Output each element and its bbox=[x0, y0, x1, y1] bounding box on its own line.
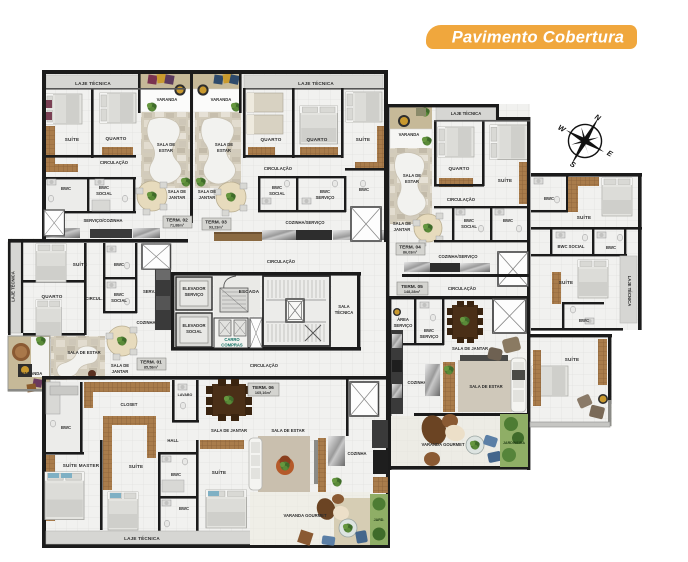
svg-text:TÉCNICA: TÉCNICA bbox=[335, 310, 354, 315]
svg-text:HALL: HALL bbox=[167, 438, 179, 443]
svg-text:SUÍTE: SUÍTE bbox=[212, 468, 227, 475]
svg-text:SERVIÇO: SERVIÇO bbox=[394, 323, 414, 328]
svg-text:BWC: BWC bbox=[61, 425, 71, 430]
svg-text:QUARTO: QUARTO bbox=[306, 137, 327, 142]
svg-text:86,03m²: 86,03m² bbox=[403, 251, 418, 255]
svg-text:COMPRAS: COMPRAS bbox=[221, 343, 243, 348]
svg-text:LAJE TÉCNICA: LAJE TÉCNICA bbox=[627, 276, 632, 306]
svg-text:CIRCULAÇÃO: CIRCULAÇÃO bbox=[447, 197, 476, 202]
svg-text:ESTAR: ESTAR bbox=[405, 179, 419, 184]
svg-text:BWC: BWC bbox=[503, 218, 513, 223]
svg-text:SUÍTE: SUÍTE bbox=[565, 355, 580, 362]
svg-text:BWC: BWC bbox=[99, 185, 109, 190]
svg-text:71,88m²: 71,88m² bbox=[170, 224, 185, 228]
svg-text:ESTAR: ESTAR bbox=[159, 148, 173, 153]
svg-text:ELEVADOR: ELEVADOR bbox=[183, 323, 206, 328]
svg-text:SALA DE: SALA DE bbox=[157, 142, 175, 147]
svg-text:SUÍTE: SUÍTE bbox=[129, 462, 144, 469]
svg-text:JANTAR: JANTAR bbox=[169, 195, 186, 200]
svg-text:COZINHA: COZINHA bbox=[136, 320, 155, 325]
svg-text:ÁREA: ÁREA bbox=[397, 317, 409, 322]
svg-text:SUÍTE: SUÍTE bbox=[73, 260, 88, 267]
svg-text:SOCIAL: SOCIAL bbox=[461, 224, 477, 229]
svg-text:COZINHA: COZINHA bbox=[407, 380, 426, 385]
svg-text:JANTAR: JANTAR bbox=[394, 227, 411, 232]
svg-text:165,16m²: 165,16m² bbox=[255, 391, 272, 395]
svg-text:SALA DE: SALA DE bbox=[403, 173, 421, 178]
svg-text:SALA DE: SALA DE bbox=[393, 221, 411, 226]
svg-text:SUÍTE: SUÍTE bbox=[577, 213, 592, 220]
svg-text:BWC: BWC bbox=[320, 189, 330, 194]
svg-text:SUÍTE: SUÍTE bbox=[65, 135, 80, 142]
svg-text:SUÍTE MASTER: SUÍTE MASTER bbox=[63, 461, 100, 468]
svg-text:SALA DE: SALA DE bbox=[168, 189, 186, 194]
svg-text:SERVIÇO: SERVIÇO bbox=[420, 334, 440, 339]
svg-text:COZINHA/SERVIÇO: COZINHA/SERVIÇO bbox=[285, 220, 325, 225]
svg-text:BWC: BWC bbox=[272, 185, 282, 190]
svg-text:ELEVADOR: ELEVADOR bbox=[183, 286, 206, 291]
svg-text:LAJE TÉCNICA: LAJE TÉCNICA bbox=[11, 271, 16, 301]
svg-text:LAJE TÉCNICA: LAJE TÉCNICA bbox=[451, 111, 481, 116]
svg-text:QUARTO: QUARTO bbox=[105, 136, 126, 141]
svg-text:SALA DE JANTAR: SALA DE JANTAR bbox=[452, 346, 488, 351]
svg-text:JARD.: JARD. bbox=[374, 518, 385, 522]
svg-text:JANTAR: JANTAR bbox=[199, 195, 216, 200]
svg-text:SERVIÇO/COZINHA: SERVIÇO/COZINHA bbox=[83, 218, 122, 223]
svg-text:SERVIÇO: SERVIÇO bbox=[185, 292, 205, 297]
svg-text:BWC: BWC bbox=[171, 472, 181, 477]
svg-text:SALA DE ESTAR: SALA DE ESTAR bbox=[67, 350, 100, 355]
svg-text:CLOSET: CLOSET bbox=[121, 402, 138, 407]
svg-text:VARANDA: VARANDA bbox=[211, 97, 232, 102]
svg-text:ESCADA: ESCADA bbox=[239, 289, 260, 294]
svg-text:CIRCULAÇÃO: CIRCULAÇÃO bbox=[264, 166, 293, 171]
svg-text:BWC: BWC bbox=[61, 186, 71, 191]
svg-text:SALA DE: SALA DE bbox=[215, 142, 233, 147]
svg-text:SALA DE: SALA DE bbox=[111, 363, 129, 368]
svg-text:SOCIAL: SOCIAL bbox=[111, 298, 127, 303]
svg-text:BWC: BWC bbox=[179, 506, 189, 511]
svg-text:85,58m²: 85,58m² bbox=[144, 366, 159, 370]
svg-text:SERVIÇO: SERVIÇO bbox=[316, 195, 336, 200]
svg-text:BWC: BWC bbox=[359, 187, 369, 192]
svg-text:CARRO: CARRO bbox=[224, 337, 240, 342]
svg-text:BWC: BWC bbox=[606, 245, 616, 250]
svg-text:ESTAR: ESTAR bbox=[217, 148, 231, 153]
svg-text:SALA: SALA bbox=[338, 304, 349, 309]
svg-text:BWC SOCIAL: BWC SOCIAL bbox=[558, 244, 585, 249]
svg-text:VARANDA: VARANDA bbox=[399, 132, 420, 137]
svg-text:CIRCULAÇÃO: CIRCULAÇÃO bbox=[100, 160, 129, 165]
svg-text:148,28m²: 148,28m² bbox=[404, 290, 421, 294]
svg-text:SERV.: SERV. bbox=[143, 289, 155, 294]
svg-text:COZINHA/SERVIÇO: COZINHA/SERVIÇO bbox=[438, 254, 478, 259]
svg-text:BWC: BWC bbox=[114, 292, 124, 297]
svg-text:BWC: BWC bbox=[424, 328, 434, 333]
svg-text:COZINHA: COZINHA bbox=[347, 451, 366, 456]
svg-text:QUARTO: QUARTO bbox=[448, 166, 469, 171]
svg-text:SUÍTE: SUÍTE bbox=[498, 176, 513, 183]
svg-text:SALA DE JANTAR: SALA DE JANTAR bbox=[211, 428, 247, 433]
svg-text:BWC: BWC bbox=[544, 196, 554, 201]
svg-text:SUÍTE: SUÍTE bbox=[356, 135, 371, 142]
svg-text:SUÍTE: SUÍTE bbox=[559, 278, 574, 285]
svg-text:LAJE TÉCNICA: LAJE TÉCNICA bbox=[75, 79, 111, 86]
svg-text:JARDINEIRA: JARDINEIRA bbox=[503, 441, 525, 445]
svg-text:SOCIAL: SOCIAL bbox=[96, 191, 112, 196]
svg-text:QUARTO: QUARTO bbox=[41, 294, 62, 299]
svg-text:SALA DE: SALA DE bbox=[198, 189, 216, 194]
svg-text:SOCIAL: SOCIAL bbox=[269, 191, 285, 196]
svg-text:JANTAR: JANTAR bbox=[112, 369, 129, 374]
svg-text:CIRCULAÇÃO: CIRCULAÇÃO bbox=[448, 286, 477, 291]
svg-text:VARANDA: VARANDA bbox=[157, 97, 178, 102]
svg-text:CIRCULAÇÃO: CIRCULAÇÃO bbox=[250, 363, 279, 368]
svg-text:BWC: BWC bbox=[114, 262, 124, 267]
svg-text:93,23m²: 93,23m² bbox=[209, 226, 224, 230]
svg-text:CIRCUL.: CIRCUL. bbox=[86, 296, 103, 301]
svg-text:VARANDA GOURMET: VARANDA GOURMET bbox=[421, 442, 464, 447]
svg-text:SALA DE ESTAR: SALA DE ESTAR bbox=[469, 384, 502, 389]
svg-text:Pavimento Cobertura: Pavimento Cobertura bbox=[452, 29, 625, 47]
svg-text:LAJE TÉCNICA: LAJE TÉCNICA bbox=[124, 534, 160, 541]
svg-text:CIRCULAÇÃO: CIRCULAÇÃO bbox=[267, 259, 296, 264]
svg-text:LAVABO: LAVABO bbox=[178, 393, 193, 397]
svg-text:LAJE TÉCNICA: LAJE TÉCNICA bbox=[298, 79, 334, 86]
svg-text:SALA DE ESTAR: SALA DE ESTAR bbox=[271, 428, 304, 433]
svg-text:QUARTO: QUARTO bbox=[260, 137, 281, 142]
svg-text:VARANDA: VARANDA bbox=[22, 371, 43, 376]
svg-text:BWC: BWC bbox=[579, 318, 589, 323]
svg-text:BWC: BWC bbox=[464, 218, 474, 223]
svg-text:VARANDA GOURMET: VARANDA GOURMET bbox=[283, 513, 326, 518]
svg-text:SOCIAL: SOCIAL bbox=[186, 329, 202, 334]
